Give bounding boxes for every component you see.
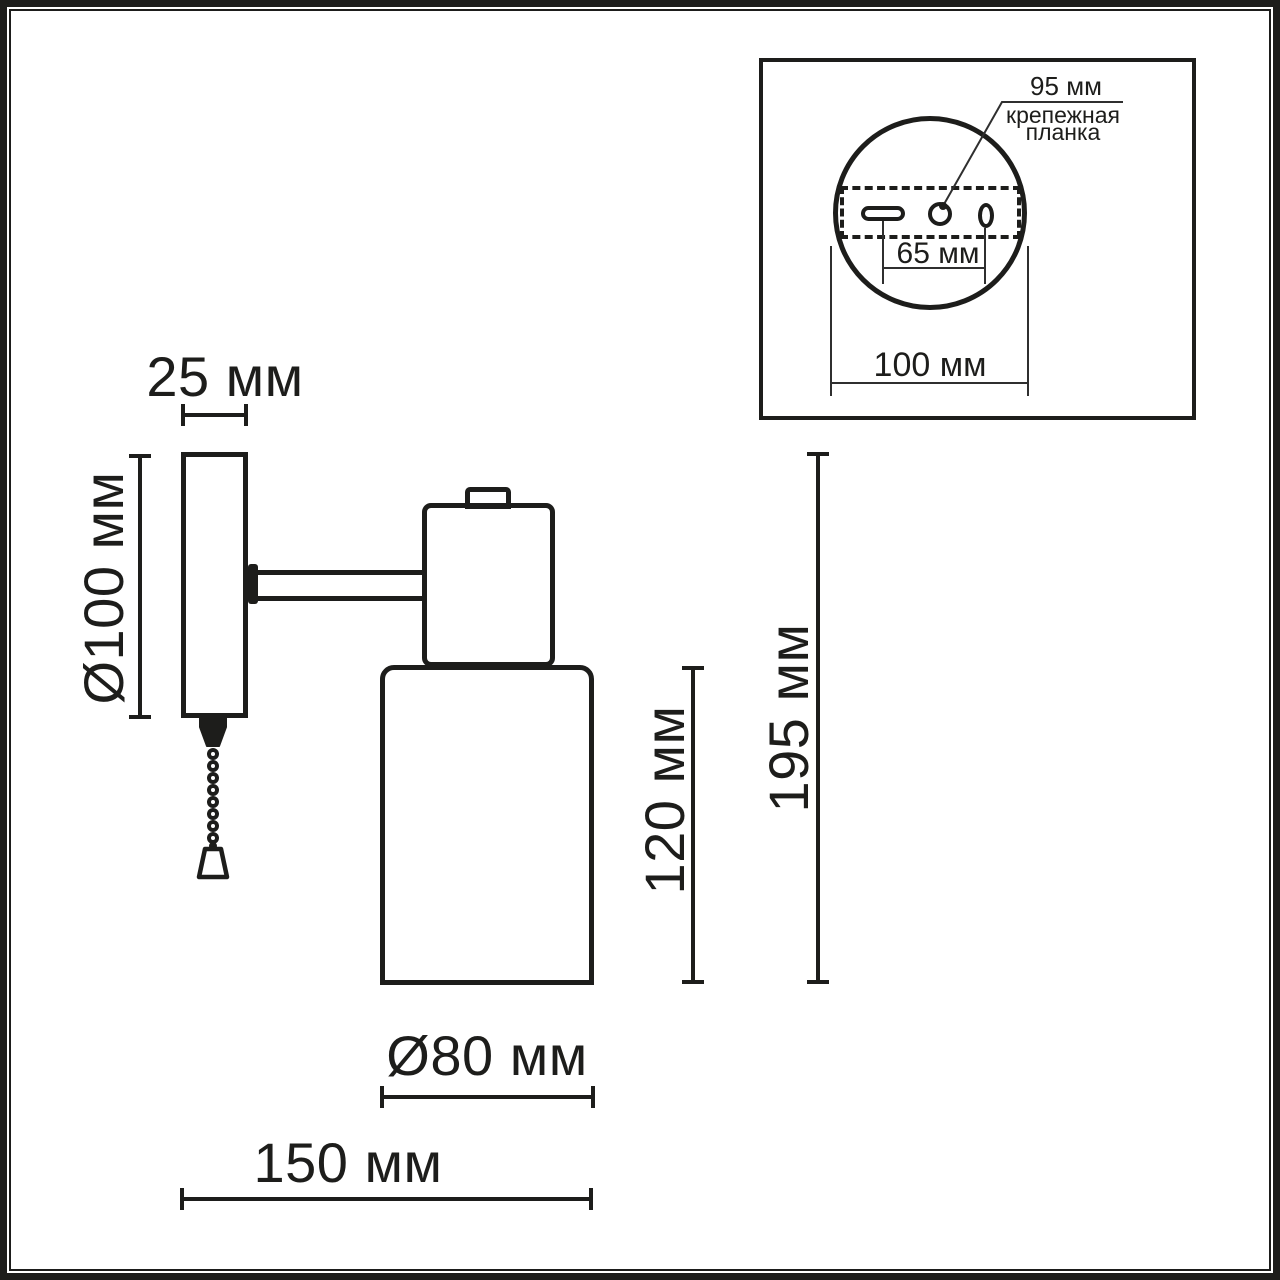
dim-195-tick-top [807, 452, 829, 456]
dim-150-line [180, 1197, 593, 1201]
lamp-housing [422, 503, 555, 667]
dim-195-tick-bottom [807, 980, 829, 984]
dim-80-label: Ø80 мм [386, 1028, 587, 1084]
inset-base-diameter-label: 100 мм [874, 348, 987, 382]
technical-drawing-page: 25 мм Ø100 мм 120 мм 195 мм Ø80 мм 150 м… [0, 0, 1280, 1280]
chain-connector [200, 716, 226, 746]
dim-120-tick-bottom [682, 980, 704, 984]
lamp-shade [380, 665, 594, 985]
dim-100-line [138, 454, 142, 719]
wall-plate [181, 452, 248, 718]
dim-100-tick-top [129, 454, 151, 458]
dim-150-label: 150 мм [254, 1135, 443, 1191]
inset-bracket-name-label: крепежная планка [998, 107, 1128, 141]
inset-bracket-length-label: 95 мм [1030, 73, 1102, 99]
pull-chain-handle [199, 849, 227, 877]
inset-hole-spacing-label: 65 мм [897, 239, 980, 269]
dim-150-tick-left [180, 1188, 184, 1210]
mounting-arm-bottom-edge [256, 596, 424, 601]
dim-195-label: 195 мм [761, 624, 817, 813]
dim-120-tick-top [682, 666, 704, 670]
leader-dot [939, 202, 947, 210]
dim-80-tick-right [591, 1086, 595, 1108]
dim-100-tick-bottom [129, 715, 151, 719]
dim-80-line [380, 1095, 595, 1099]
dim-100-label: Ø100 мм [76, 471, 132, 704]
pull-chain [188, 715, 240, 885]
mounting-arm-top-edge [256, 570, 424, 575]
dim-25-line [181, 413, 248, 417]
chain-beads [207, 748, 219, 850]
dim-25-label: 25 мм [146, 349, 303, 405]
dim-80-tick-left [380, 1086, 384, 1108]
dim-120-label: 120 мм [637, 706, 693, 895]
dim-150-tick-right [589, 1188, 593, 1210]
